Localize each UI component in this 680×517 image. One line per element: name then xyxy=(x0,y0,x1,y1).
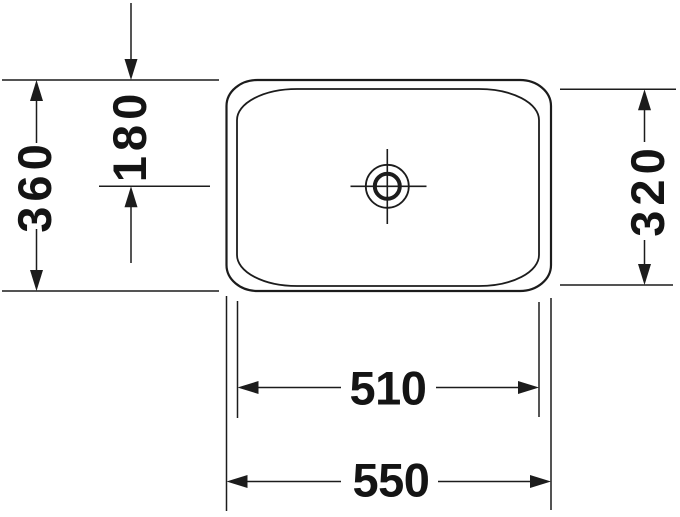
dimension-label-drain-offset: 180 xyxy=(103,89,156,182)
arrowhead-right xyxy=(530,475,551,488)
dimension-label-inner-depth: 320 xyxy=(621,143,674,236)
drawing-canvas: 360 180 320 510 xyxy=(0,0,680,517)
dimension-label-overall-width: 550 xyxy=(353,454,430,507)
arrowhead-down xyxy=(30,270,43,291)
arrowhead-up xyxy=(125,186,138,207)
dimension-inner-width: 510 xyxy=(238,301,540,418)
arrowhead-up xyxy=(638,89,651,110)
arrowhead-down xyxy=(125,59,138,80)
arrowhead-up xyxy=(30,80,43,101)
arrowhead-left xyxy=(227,475,248,488)
dimension-label-inner-width: 510 xyxy=(350,362,427,415)
arrowhead-down xyxy=(638,264,651,285)
arrowhead-right xyxy=(518,381,539,394)
washbasin-technical-drawing: 360 180 320 510 xyxy=(0,0,680,517)
dimension-inner-depth: 320 xyxy=(560,89,676,285)
drain-mark xyxy=(351,149,427,224)
arrowhead-left xyxy=(238,381,259,394)
dimension-drain-offset: 180 xyxy=(99,3,210,263)
dimension-label-overall-depth: 360 xyxy=(8,139,61,232)
